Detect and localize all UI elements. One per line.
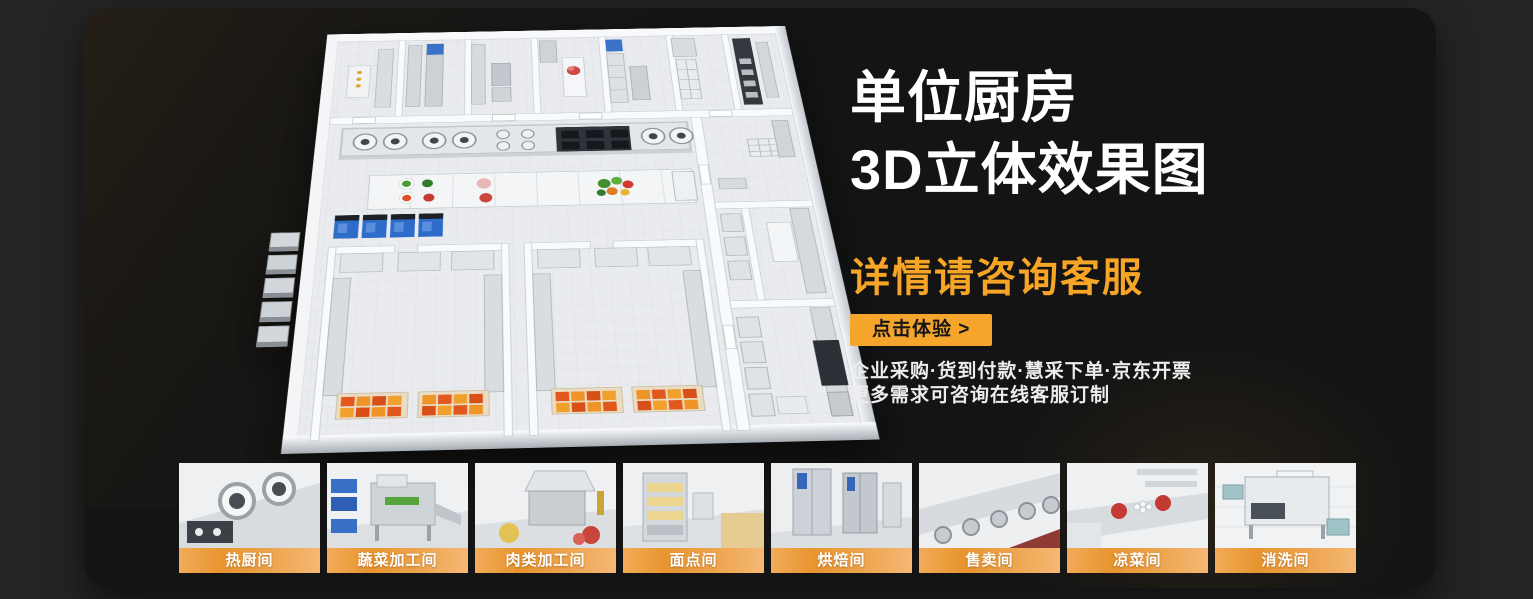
- thumbnail-label: 面点间: [623, 548, 764, 573]
- banner-stage: 单位厨房 3D立体效果图 详情请咨询客服 点击体验 > 企业采购·货到付款·慧采…: [0, 0, 1533, 599]
- thumbnail-cold-dish[interactable]: 凉菜间: [1067, 463, 1208, 573]
- thumbnail-label: 烘焙间: [771, 548, 912, 573]
- thumbnail-pastry[interactable]: 面点间: [623, 463, 764, 573]
- pastry-photo: [623, 463, 764, 548]
- vegetable-processing-photo: [327, 463, 468, 548]
- thumbnail-vegetable-processing[interactable]: 蔬菜加工间: [327, 463, 468, 573]
- thumbnail-selling[interactable]: 售卖间: [919, 463, 1060, 573]
- thumbnail-label: 肉类加工间: [475, 548, 616, 573]
- baking-photo: [771, 463, 912, 548]
- page-title: 单位厨房 3D立体效果图: [850, 62, 1390, 206]
- thumbnail-label: 凉菜间: [1067, 548, 1208, 573]
- thumbnail-label: 售卖间: [919, 548, 1060, 573]
- consult-subtitle: 详情请咨询客服: [850, 256, 1390, 300]
- meat-processing-photo: [475, 463, 616, 548]
- outside-equipment: [256, 233, 299, 347]
- thumbnail-hot-kitchen[interactable]: 热厨间: [179, 463, 320, 573]
- promo-banner-panel: 单位厨房 3D立体效果图 详情请咨询客服 点击体验 > 企业采购·货到付款·慧采…: [84, 8, 1436, 588]
- thumbnail-baking[interactable]: 烘焙间: [771, 463, 912, 573]
- thumbnail-meat-processing[interactable]: 肉类加工间: [475, 463, 616, 573]
- selling-photo: [919, 463, 1060, 548]
- purchase-info-line-2: 更多需求可咨询在线客服订制: [850, 384, 1390, 408]
- kitchen-floorplan-3d: [236, 26, 882, 455]
- hero-text-block: 单位厨房 3D立体效果图 详情请咨询客服 点击体验 > 企业采购·货到付款·慧采…: [850, 62, 1390, 408]
- thumbnail-label: 消洗间: [1215, 548, 1356, 573]
- hot-kitchen-photo: [179, 463, 320, 548]
- purchase-info: 企业采购·货到付款·慧采下单·京东开票 更多需求可咨询在线客服订制: [850, 360, 1390, 408]
- cold-dish-photo: [1067, 463, 1208, 548]
- title-line-2: 3D立体效果图: [850, 134, 1390, 206]
- thumbnail-washing[interactable]: 消洗间: [1215, 463, 1356, 573]
- prep-counter: [367, 169, 698, 210]
- thumbnail-label: 热厨间: [179, 548, 320, 573]
- title-line-1: 单位厨房: [850, 62, 1390, 134]
- thumbnail-label: 蔬菜加工间: [327, 548, 468, 573]
- washing-photo: [1215, 463, 1356, 548]
- experience-button[interactable]: 点击体验 >: [850, 314, 992, 346]
- room-thumbnails: 热厨间 蔬菜加工间: [179, 463, 1356, 573]
- purchase-info-line-1: 企业采购·货到付款·慧采下单·京东开票: [850, 360, 1390, 384]
- kitchen-floorplan-svg: [236, 26, 882, 455]
